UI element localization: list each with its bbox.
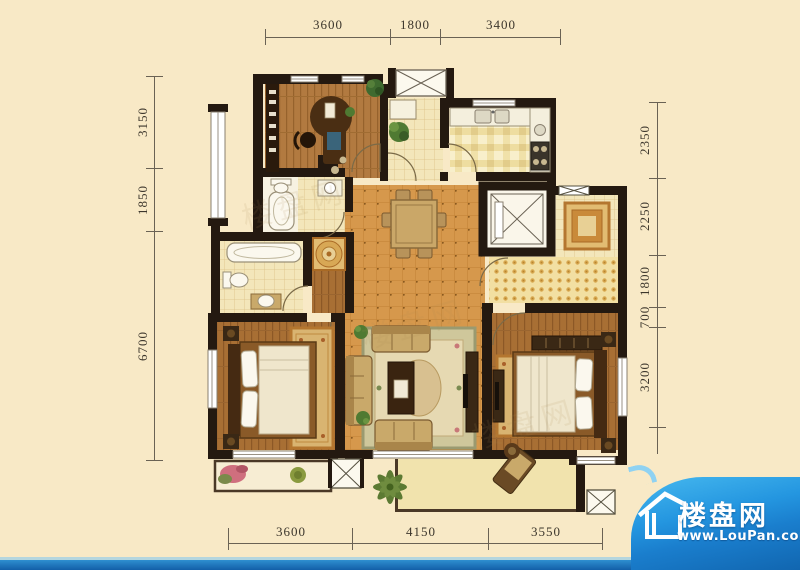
mandala-rug (313, 238, 345, 270)
dim-label-bottom-1: 3600 (276, 524, 306, 540)
dimension-line-left (154, 76, 155, 460)
dim-label-bottom-2: 4150 (406, 524, 436, 540)
dimension-line-bottom (228, 543, 602, 544)
tick (649, 255, 666, 256)
entry-door-symbol (559, 186, 589, 195)
site-url: www.LouPan.com (677, 529, 800, 544)
dim-label-right-2: 2250 (637, 201, 653, 231)
dim-label-top-1: 3600 (313, 17, 343, 33)
tick (488, 528, 489, 550)
storage-closet (396, 70, 446, 96)
study-plant (366, 79, 384, 97)
dim-label-left-3: 6700 (135, 331, 151, 361)
tick (649, 427, 666, 428)
tick (146, 76, 163, 77)
ac-unit-box (328, 459, 364, 488)
coffee-table (388, 362, 414, 414)
bed-left (228, 342, 316, 438)
dim-label-bottom-3: 3550 (531, 524, 561, 540)
tick (146, 460, 163, 461)
dim-label-right-1: 2350 (637, 125, 653, 155)
tick (265, 29, 266, 45)
stove (531, 142, 549, 170)
balcony-south (395, 459, 581, 512)
wardrobe (532, 336, 602, 350)
toilet-2 (223, 272, 248, 288)
site-name: 楼盘网 (679, 494, 799, 533)
palm-plant (373, 470, 407, 504)
dim-label-right-5: 3200 (637, 362, 653, 392)
dim-label-top-3: 3400 (486, 17, 516, 33)
hallway-cabinet (390, 100, 416, 119)
tick (649, 102, 666, 103)
dim-label-left-1: 3150 (135, 107, 151, 137)
floorplan-page: 3600 1800 3400 3600 4150 3550 3150 1850 … (0, 0, 800, 570)
dining-table (382, 190, 446, 258)
tick (228, 528, 229, 550)
tick (649, 178, 666, 179)
dimension-line-right (657, 102, 658, 454)
ac-unit-box-2 (587, 490, 615, 514)
tick (560, 29, 561, 45)
dim-label-left-2: 1850 (135, 185, 151, 215)
tick (390, 29, 391, 45)
tick (440, 29, 441, 45)
tick (352, 528, 353, 550)
doormat-rug (565, 203, 609, 249)
balcony-flowerbed (215, 461, 331, 491)
tick (146, 168, 163, 169)
tick (602, 528, 603, 550)
dimension-line-top (265, 37, 561, 38)
vanity-2 (251, 294, 281, 309)
elevator (483, 186, 551, 252)
dim-label-top-2: 1800 (400, 17, 430, 33)
floor-plan (195, 60, 635, 515)
dim-label-right-3: 1800 (637, 266, 653, 296)
bookshelf (266, 84, 279, 172)
swoosh-curl-decoration (628, 461, 657, 487)
hallway-plant (389, 122, 409, 142)
bathtub-2 (227, 243, 301, 262)
dim-label-right-4: 700 (637, 306, 653, 329)
tick (146, 231, 163, 232)
